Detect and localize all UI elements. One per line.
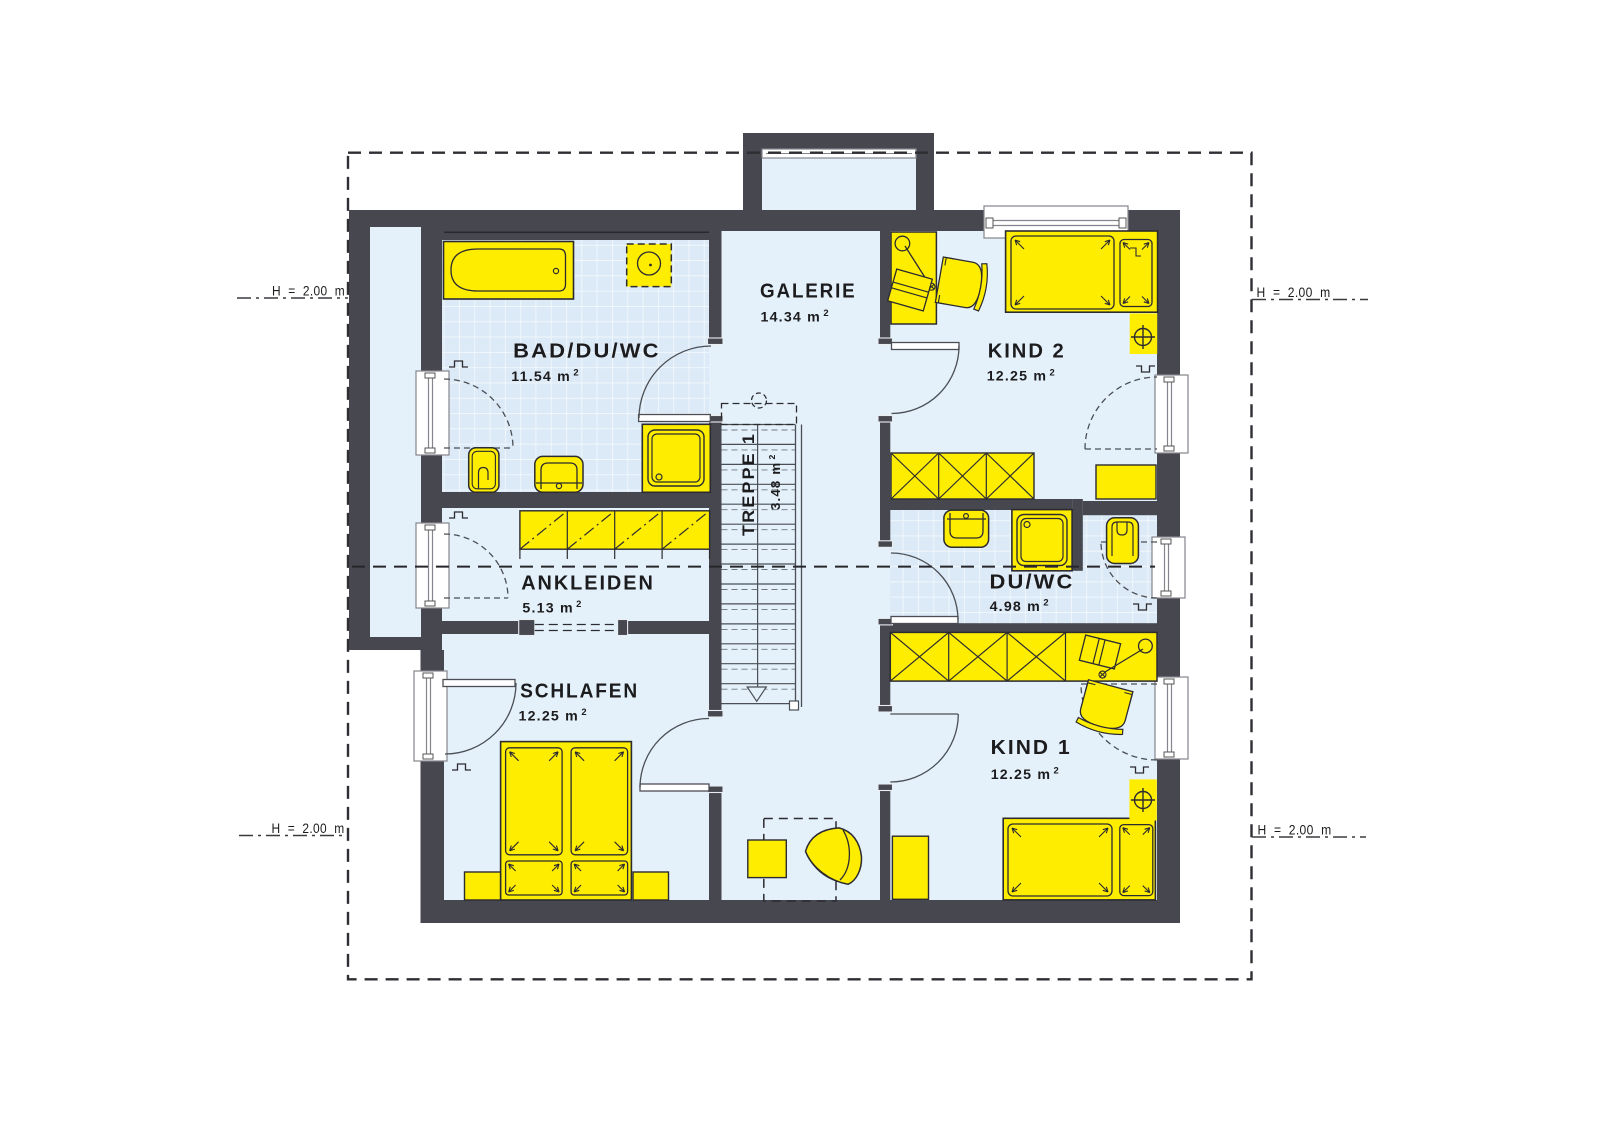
svg-text:H = 2.00 m: H = 2.00 m (1257, 285, 1331, 301)
svg-text:12.25 m 2: 12.25 m 2 (987, 366, 1056, 384)
svg-text:12.25 m 2: 12.25 m 2 (519, 706, 588, 724)
svg-text:H = 2.00 m: H = 2.00 m (1258, 823, 1332, 839)
svg-text:H = 2.00 m: H = 2.00 m (272, 821, 345, 837)
svg-text:3.48 m 2: 3.48 m 2 (767, 453, 783, 510)
svg-text:H = 2.00 m: H = 2.00 m (272, 283, 345, 299)
svg-text:SCHLAFEN: SCHLAFEN (520, 679, 639, 702)
svg-text:14.34 m 2: 14.34 m 2 (761, 307, 830, 325)
svg-text:KIND 1: KIND 1 (991, 736, 1072, 759)
svg-text:KIND 2: KIND 2 (988, 339, 1066, 362)
svg-text:12.25 m 2: 12.25 m 2 (991, 765, 1060, 783)
svg-text:4.98 m 2: 4.98 m 2 (990, 597, 1050, 615)
svg-text:11.54 m 2: 11.54 m 2 (511, 367, 579, 385)
svg-text:TREPPE 1: TREPPE 1 (739, 432, 758, 536)
svg-text:ANKLEIDEN: ANKLEIDEN (521, 572, 655, 595)
svg-text:GALERIE: GALERIE (760, 280, 857, 303)
svg-text:5.13 m 2: 5.13 m 2 (522, 598, 582, 616)
svg-text:DU/WC: DU/WC (990, 571, 1075, 594)
svg-text:BAD/DU/WC: BAD/DU/WC (513, 339, 661, 362)
